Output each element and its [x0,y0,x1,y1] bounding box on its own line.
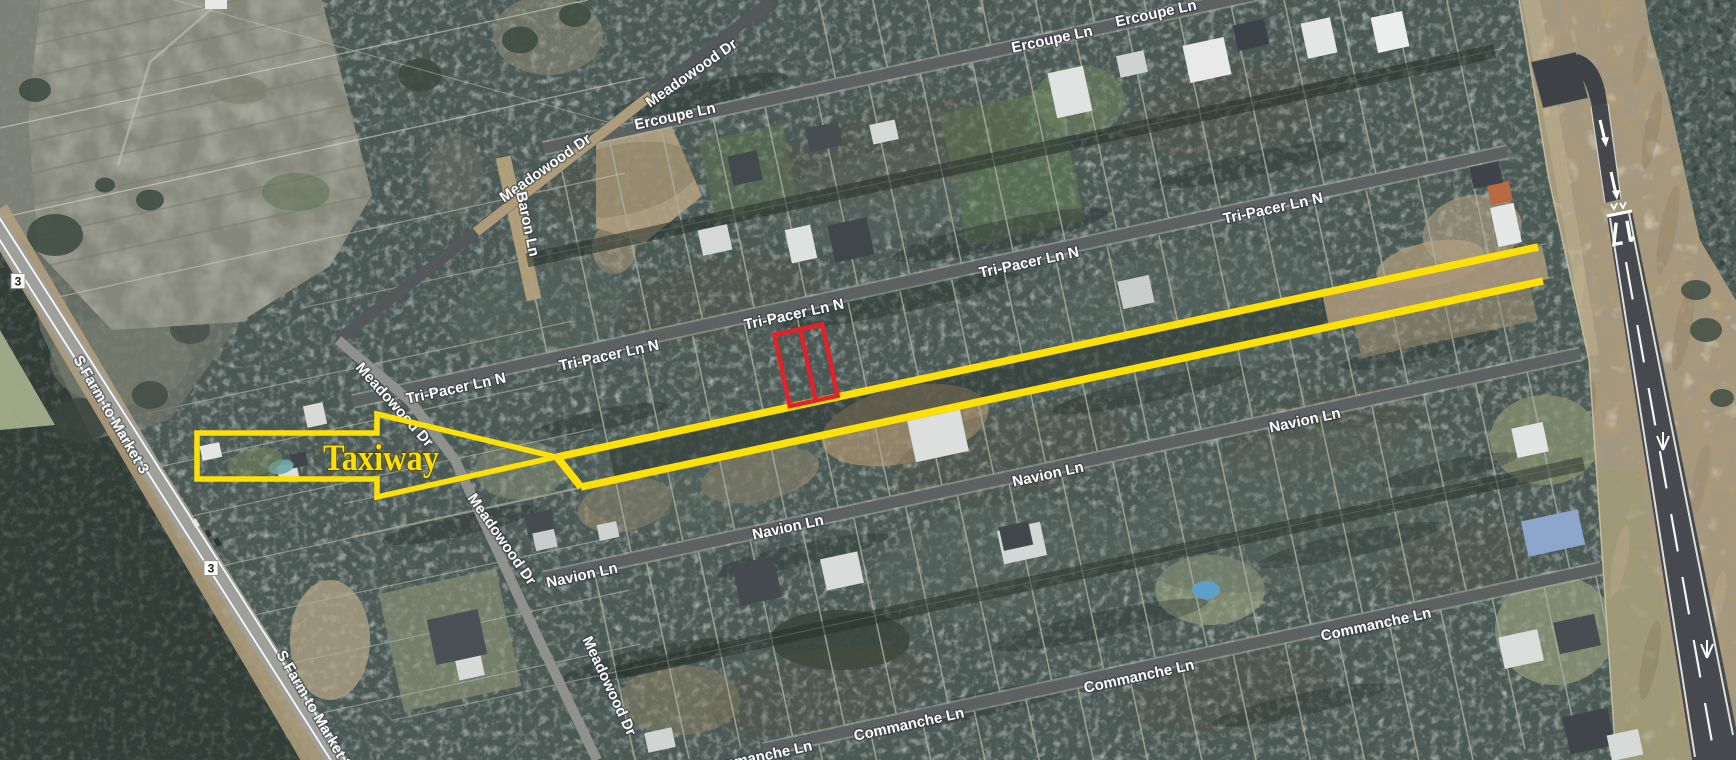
svg-text:Taxiway: Taxiway [323,438,439,479]
svg-text:3: 3 [15,275,22,289]
svg-text:3: 3 [208,562,215,576]
